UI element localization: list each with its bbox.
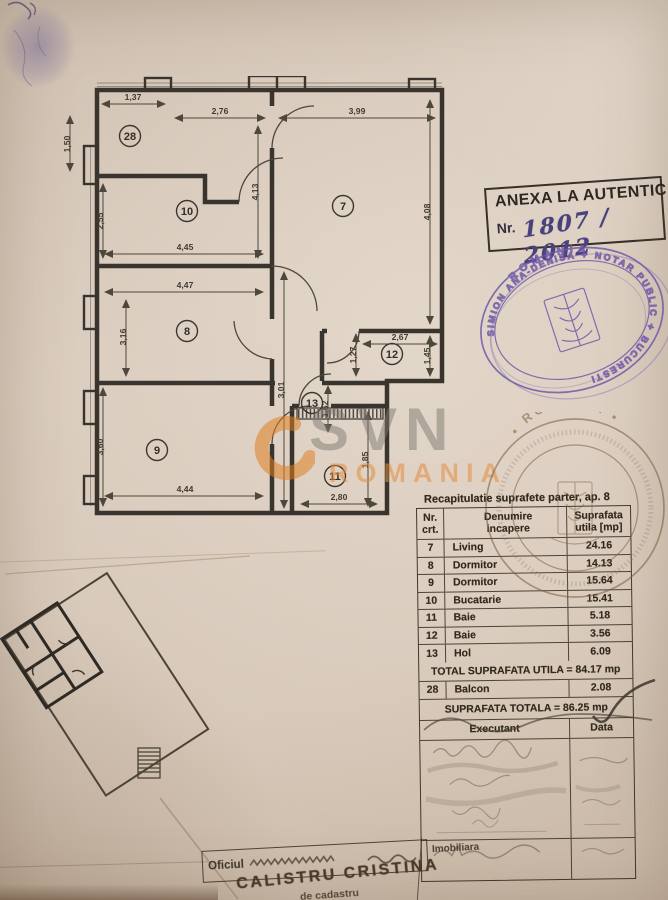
table-cell: 13 (419, 645, 446, 663)
dimension-label: 3,16 (118, 328, 128, 345)
dimension-lines (70, 100, 437, 508)
data-signature-scribbles (571, 738, 634, 837)
dimension-label: 3,99 (349, 106, 366, 116)
table-cell: 7 (417, 540, 444, 557)
room-number: 11 (329, 471, 341, 483)
door-arcs (234, 106, 359, 444)
dimension-label: 4,08 (422, 203, 432, 220)
notary-stamp: ROMANIA SIMION ANA-DENISA ✦ NOTAR PUBLIC… (468, 222, 668, 418)
table-cell: 3.56 (569, 625, 632, 642)
table-row: 13Hol6.09 (419, 642, 632, 662)
signature-box (420, 737, 634, 840)
dimension-label: 4,13 (250, 183, 260, 200)
dimension-label: 1,27 (348, 346, 358, 363)
dimension-label: 3,60 (95, 438, 105, 455)
room-number: 28 (124, 131, 136, 143)
room-number: 10 (181, 206, 193, 218)
room-number: 9 (154, 445, 160, 457)
dimension-label: 1,85 (360, 451, 370, 468)
table-cell: 12 (419, 627, 446, 644)
dimension-label: 4,45 (177, 242, 194, 252)
coat-of-arms-icon (544, 288, 601, 352)
window-glazing-lines (91, 83, 443, 506)
table-cell: Baie (445, 608, 568, 626)
scanned-cadastral-document: 1,372,763,991,502,554,134,084,454,473,16… (0, 0, 668, 900)
dimension-label: 1,50 (62, 135, 72, 152)
dimension-label: 1,37 (125, 92, 142, 102)
table-cell: 8 (418, 557, 445, 574)
room-number: 8 (184, 326, 190, 338)
executant-signature-scribbles (421, 739, 570, 839)
room-number: 7 (340, 201, 346, 213)
table-cell: Baie (446, 625, 569, 643)
government-round-stamp: • ROMANIA • (473, 412, 668, 604)
dimension-label: 3,01 (276, 381, 286, 398)
dimension-label: 2,76 (212, 106, 229, 116)
dimension-label: 2,67 (392, 332, 409, 342)
table-cell: 9 (418, 575, 445, 592)
col-nr: Nr. (423, 512, 437, 524)
table-cell: Hol (446, 643, 569, 662)
gov-coat-of-arms-icon (551, 482, 599, 544)
table-cell: 5.18 (568, 607, 631, 624)
room-number: 12 (386, 349, 398, 361)
window-tabs (84, 76, 435, 504)
walls (97, 90, 442, 513)
ink-smudge-strokes (0, 0, 120, 120)
svg-text:SIMION ANA-DENISA ✦ NOTAR PUBL: SIMION ANA-DENISA ✦ NOTAR PUBLIC ✦ BUCUR… (468, 228, 668, 412)
office-label-left: Oficiul (208, 859, 244, 873)
dimension-label: 2,55 (95, 212, 105, 229)
room-number: 13 (306, 398, 318, 410)
notary-ring-text: SIMION ANA-DENISA ✦ NOTAR PUBLIC ✦ BUCUR… (468, 228, 668, 412)
cadastru-officer-role: de cadastru (300, 887, 360, 900)
site-plan-sketch (0, 552, 255, 900)
dimension-label: 2,80 (331, 492, 348, 502)
dimension-label: 4,47 (177, 280, 194, 290)
room-number-labels: 2810781213911 (120, 126, 403, 487)
check-mark-handwritten (585, 672, 665, 732)
table-cell: 6.09 (569, 642, 632, 660)
date-handwriting (574, 838, 637, 877)
floor-plan: 1,372,763,991,502,554,134,084,454,473,16… (57, 76, 457, 528)
dimension-label: 1,45 (422, 347, 432, 364)
dimension-label: 4,44 (177, 484, 194, 494)
dimension-labels: 1,372,763,991,502,554,134,084,454,473,16… (62, 92, 432, 502)
table-cell: 10 (418, 592, 445, 609)
table-cell: 11 (418, 610, 445, 627)
